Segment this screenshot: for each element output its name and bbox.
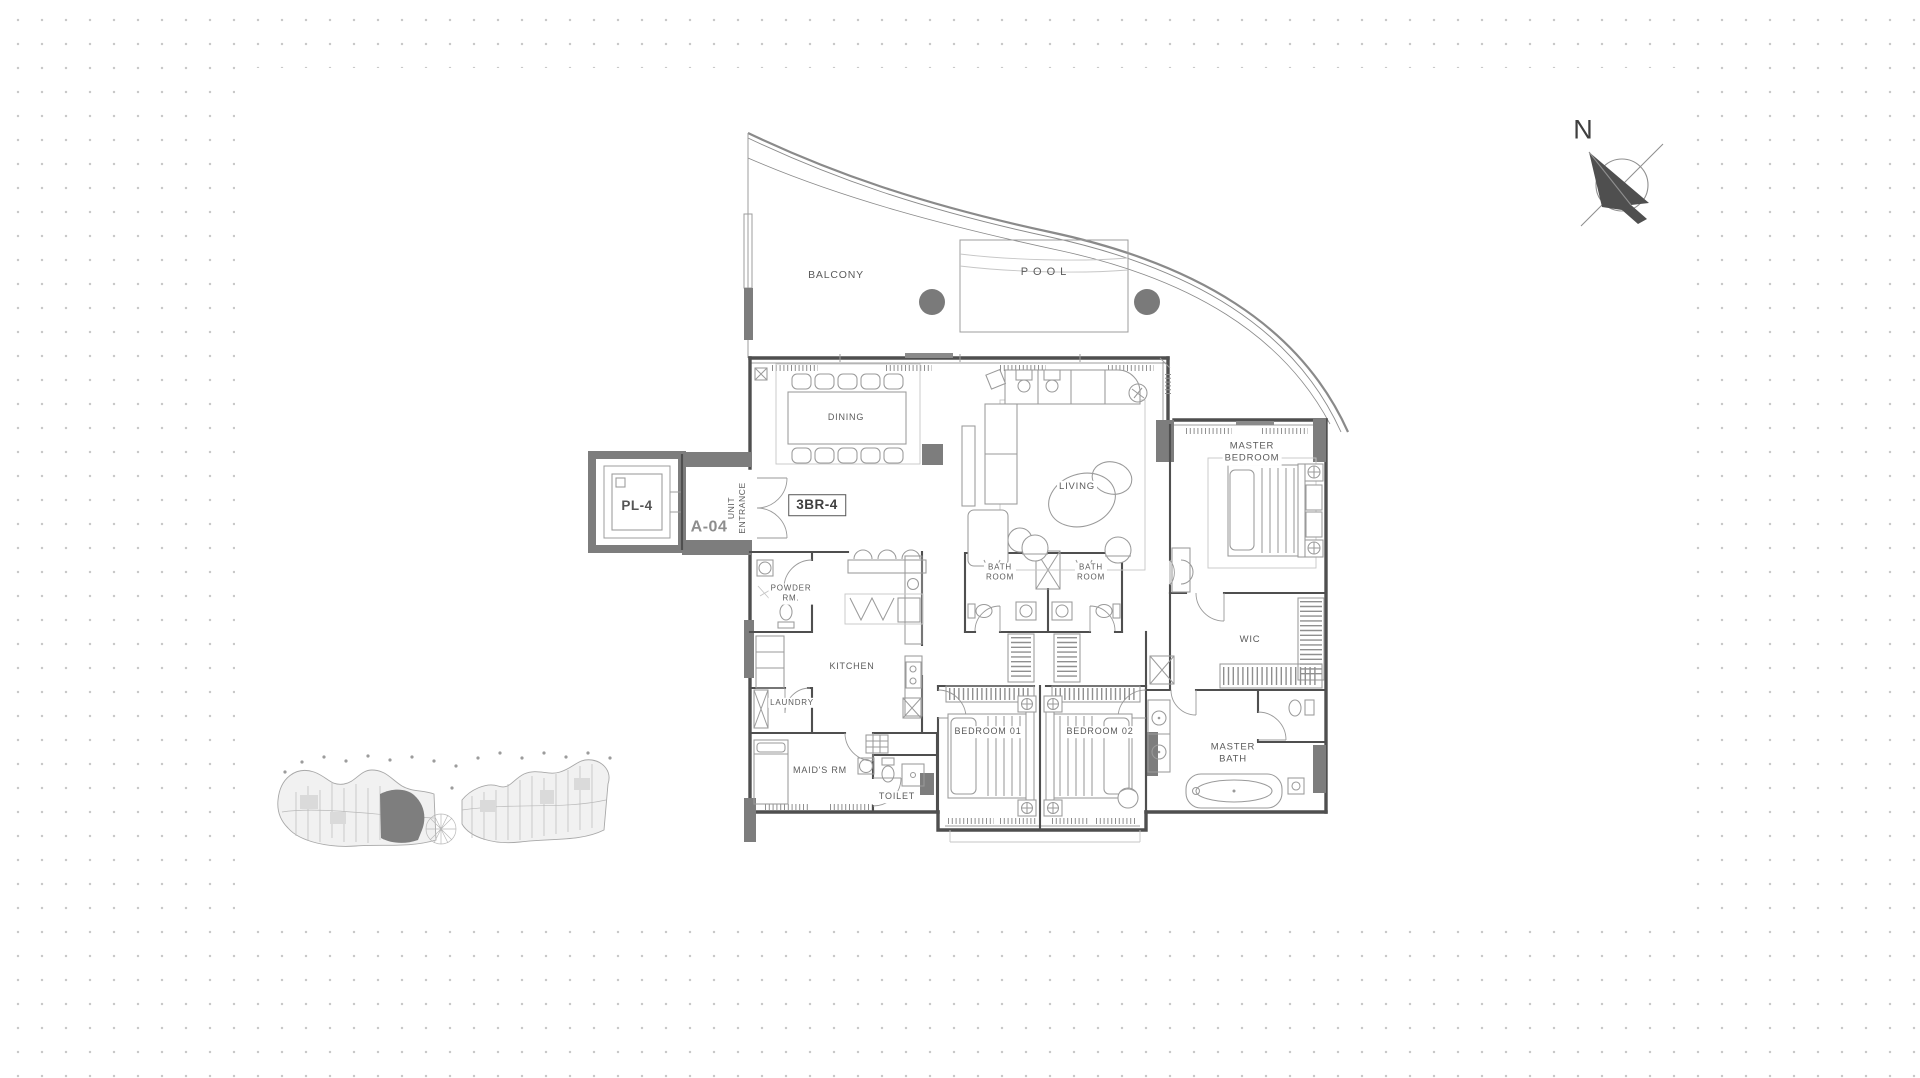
living-furniture — [962, 370, 1147, 570]
floor-plan-drawing — [0, 0, 1920, 1078]
toilet-fixtures — [858, 758, 924, 786]
column — [922, 444, 943, 465]
label-living: LIVING — [1057, 481, 1097, 493]
balcony-column — [919, 289, 945, 315]
wardrobes — [946, 598, 1324, 702]
label-master-bath: MASTER BATH — [1209, 742, 1257, 767]
label-toilet: TOILET — [877, 791, 917, 803]
label-bedroom-2: BEDROOM 02 — [1064, 726, 1135, 738]
key-plan — [278, 751, 612, 846]
key-plan-stair-icon — [426, 814, 456, 844]
label-bathroom-2: BATH ROOM — [1075, 563, 1107, 584]
label-bathroom-1: BATH ROOM — [984, 563, 1016, 584]
label-unit-number: A-04 — [689, 518, 730, 539]
label-elevator: PL-4 — [619, 497, 654, 515]
label-kitchen: KITCHEN — [827, 661, 876, 673]
label-maids-room: MAID'S RM — [791, 765, 849, 777]
maids-room-furniture — [754, 740, 788, 804]
north-arrow-icon — [1581, 144, 1663, 226]
bedroom-furniture — [948, 696, 1138, 816]
label-wic: WIC — [1238, 634, 1263, 646]
label-laundry: LAUNDRY — [768, 698, 816, 708]
balcony-column — [1134, 289, 1160, 315]
label-unit-type: 3BR-4 — [788, 494, 846, 516]
label-balcony: BALCONY — [806, 269, 866, 283]
dining-furniture — [776, 364, 943, 573]
label-master-bedroom: MASTER BEDROOM — [1223, 441, 1282, 466]
master-bedroom-furniture — [1172, 458, 1323, 592]
door-swings — [784, 560, 1286, 806]
label-pool: POOL — [1019, 265, 1074, 279]
label-bedroom-1: BEDROOM 01 — [952, 726, 1023, 738]
label-dining: DINING — [826, 412, 866, 424]
label-north: N — [1571, 112, 1595, 147]
label-powder-room: POWDER RM. — [769, 584, 814, 605]
